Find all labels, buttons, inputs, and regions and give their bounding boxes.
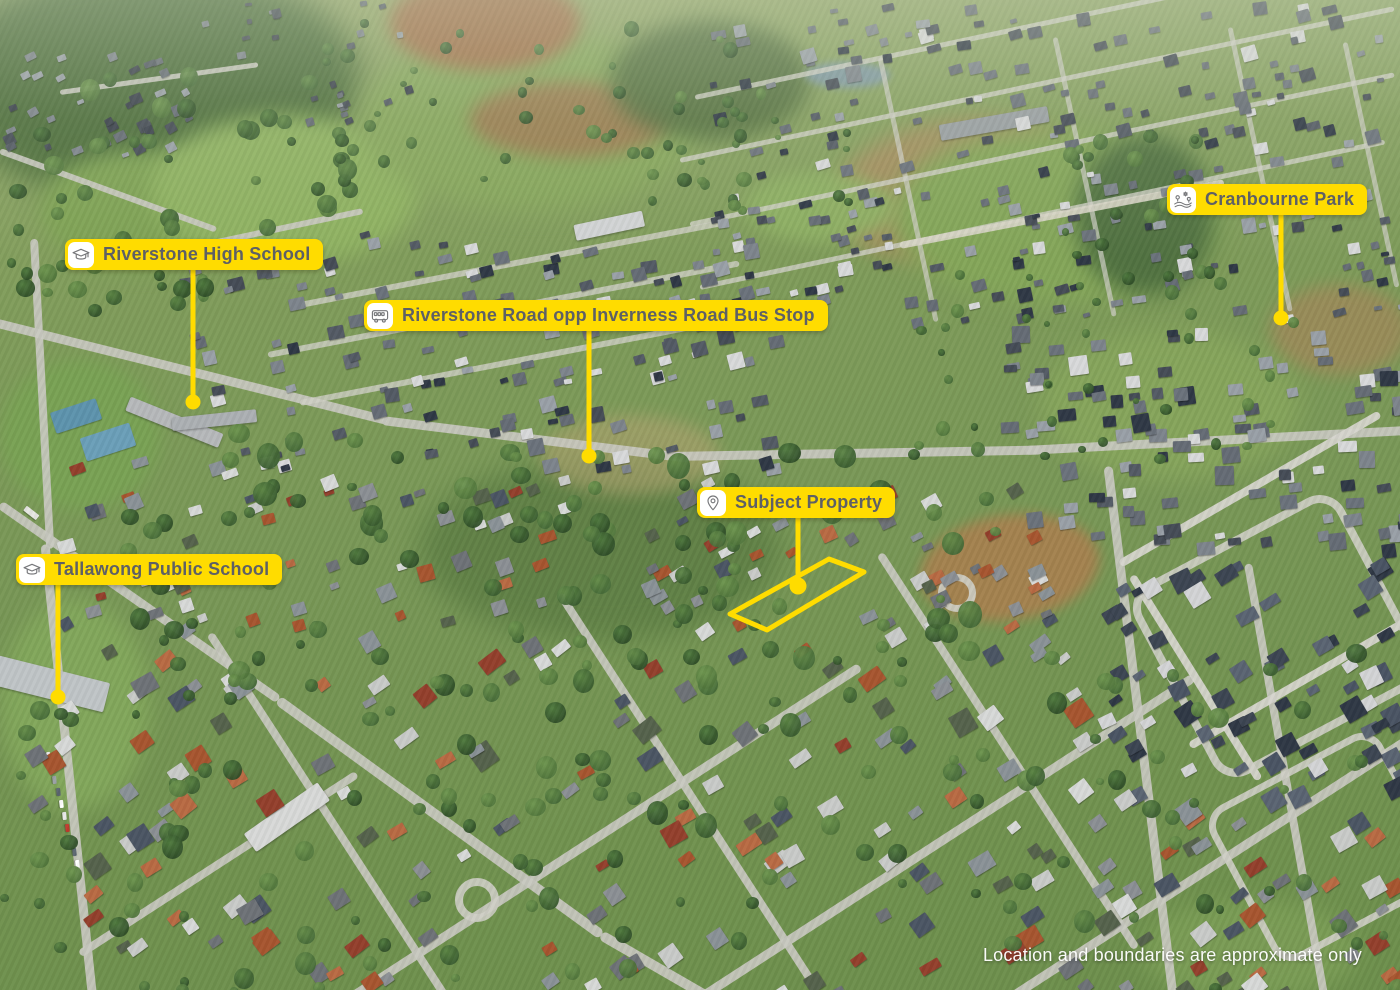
tree xyxy=(1092,298,1101,307)
tree xyxy=(583,526,600,542)
tree xyxy=(1096,778,1104,786)
tree xyxy=(762,641,779,658)
tree xyxy=(121,509,139,526)
tree xyxy=(731,932,748,950)
tree xyxy=(1108,770,1127,791)
tree xyxy=(1209,983,1222,990)
tree xyxy=(1144,209,1158,223)
tree xyxy=(728,200,741,211)
tree xyxy=(413,803,426,815)
tree xyxy=(511,467,531,484)
graduation-cap-icon xyxy=(19,557,45,583)
tree xyxy=(539,887,559,910)
tree xyxy=(296,640,305,650)
tree xyxy=(856,844,875,861)
tree xyxy=(317,195,337,213)
tree xyxy=(971,889,980,898)
tree xyxy=(198,763,212,778)
tree xyxy=(955,270,966,280)
tree xyxy=(322,43,333,55)
tree xyxy=(588,481,602,495)
tree xyxy=(295,841,315,861)
tree xyxy=(1154,454,1166,465)
tree xyxy=(44,156,63,175)
tree xyxy=(970,794,985,809)
tree xyxy=(537,511,553,529)
tree xyxy=(1098,437,1108,447)
tree xyxy=(170,657,185,671)
tree xyxy=(1165,285,1179,300)
tree xyxy=(938,349,944,356)
tree xyxy=(1026,274,1033,281)
marker-tallawong-public-school: Tallawong Public School xyxy=(16,554,282,585)
tree xyxy=(483,683,500,702)
tree xyxy=(127,873,144,891)
tree xyxy=(60,835,77,850)
tree xyxy=(179,911,189,922)
tree xyxy=(890,726,908,744)
tree xyxy=(30,701,50,720)
tree xyxy=(843,129,851,137)
tree xyxy=(16,771,26,780)
tree xyxy=(943,763,963,781)
tree xyxy=(936,595,945,603)
tree xyxy=(222,452,239,468)
tree xyxy=(1331,919,1347,933)
tree xyxy=(1078,446,1086,454)
tree xyxy=(591,450,606,465)
tree xyxy=(944,375,952,384)
tree xyxy=(1264,886,1275,896)
tree xyxy=(1083,383,1094,393)
tree xyxy=(942,532,964,555)
tree xyxy=(676,897,685,908)
tree xyxy=(484,579,502,596)
tree xyxy=(1266,420,1275,428)
marker-cranbourne-park: Cranbourne Park xyxy=(1167,184,1367,215)
tree xyxy=(877,619,890,631)
tree xyxy=(157,282,167,291)
tree xyxy=(951,304,965,319)
tree xyxy=(244,507,255,518)
tree xyxy=(526,900,539,911)
tree xyxy=(154,270,165,281)
tree xyxy=(746,897,759,910)
tree xyxy=(769,697,781,708)
tree xyxy=(378,155,390,168)
tree xyxy=(573,635,587,648)
tree xyxy=(510,526,529,544)
tree xyxy=(1014,873,1032,889)
tree xyxy=(709,531,726,548)
tree xyxy=(518,87,528,98)
marker-bus-stop: Riverstone Road opp Inverness Road Bus S… xyxy=(364,300,828,331)
tree xyxy=(513,854,528,870)
tree xyxy=(939,624,958,644)
tree xyxy=(141,134,156,149)
tree xyxy=(1189,798,1199,808)
tree xyxy=(647,801,668,825)
tree xyxy=(378,938,391,952)
tree xyxy=(1133,398,1140,404)
tree xyxy=(1288,317,1299,328)
tree xyxy=(143,522,162,539)
tree xyxy=(56,193,67,203)
tree xyxy=(290,494,306,508)
tree xyxy=(438,502,449,514)
tree xyxy=(347,144,359,157)
tree xyxy=(774,796,787,811)
tree xyxy=(717,117,729,128)
tree xyxy=(454,477,476,498)
tree xyxy=(33,127,51,142)
tree xyxy=(510,452,521,462)
tree xyxy=(728,563,741,575)
tree xyxy=(374,111,381,117)
tree xyxy=(305,679,318,692)
tree xyxy=(51,207,64,220)
tree xyxy=(843,146,849,153)
tree xyxy=(590,574,611,594)
tree xyxy=(297,926,314,943)
tree xyxy=(186,618,198,629)
tree xyxy=(679,479,690,491)
tree xyxy=(1187,248,1199,259)
tree xyxy=(525,77,534,86)
tree xyxy=(364,120,376,132)
tree xyxy=(335,154,346,164)
tree xyxy=(619,959,637,978)
tree xyxy=(897,657,907,666)
tree xyxy=(360,19,369,27)
tree xyxy=(253,482,277,505)
tree xyxy=(260,109,277,127)
marker-label: Riverstone Road opp Inverness Road Bus S… xyxy=(402,300,815,331)
tree xyxy=(391,451,404,464)
tree xyxy=(109,917,129,937)
tree xyxy=(613,625,632,644)
tree xyxy=(1047,692,1067,714)
tree xyxy=(683,649,700,665)
tree xyxy=(716,36,724,43)
tree xyxy=(480,176,487,183)
tree xyxy=(553,514,572,533)
tree xyxy=(103,72,117,87)
tree xyxy=(1208,708,1229,728)
tree xyxy=(971,423,979,431)
tree xyxy=(525,798,546,816)
tree xyxy=(780,713,802,737)
tree xyxy=(285,432,303,452)
marker-subject-property: Subject Property xyxy=(697,487,895,518)
tree xyxy=(129,136,140,148)
tree xyxy=(834,445,856,467)
tree xyxy=(385,706,396,716)
tree xyxy=(295,952,316,975)
tree xyxy=(723,42,738,59)
tree xyxy=(675,567,692,585)
tree xyxy=(221,511,237,526)
tree xyxy=(627,792,640,806)
tree xyxy=(132,710,140,719)
tree xyxy=(667,453,690,479)
marker-label: Cranbourne Park xyxy=(1205,184,1354,215)
tree xyxy=(926,504,942,521)
tree xyxy=(663,140,674,152)
tree xyxy=(1216,905,1224,914)
tree xyxy=(1040,452,1049,460)
tree xyxy=(775,135,781,141)
tree xyxy=(277,115,292,130)
tree xyxy=(613,86,626,99)
tree xyxy=(183,690,195,701)
tree xyxy=(40,810,52,821)
tree xyxy=(695,813,717,838)
tree xyxy=(400,81,407,87)
tree xyxy=(54,708,68,720)
tree xyxy=(539,668,558,685)
tree xyxy=(648,447,665,464)
tree xyxy=(821,815,840,835)
tree xyxy=(712,595,726,611)
tree xyxy=(762,869,777,885)
tree xyxy=(641,147,654,160)
tree xyxy=(463,819,476,833)
tree xyxy=(162,835,183,859)
tree xyxy=(460,684,473,697)
tree xyxy=(772,598,787,615)
tree xyxy=(1083,152,1095,163)
tree xyxy=(456,29,464,37)
tree xyxy=(322,58,331,66)
tree xyxy=(607,850,623,867)
park-icon xyxy=(1170,187,1196,213)
tree xyxy=(500,153,511,164)
marker-label: Subject Property xyxy=(735,487,882,518)
tree xyxy=(1022,314,1032,323)
tree xyxy=(876,641,889,654)
tree xyxy=(1388,979,1400,990)
tree xyxy=(0,894,8,902)
tree xyxy=(675,91,687,103)
tree xyxy=(1075,145,1084,154)
tree xyxy=(1129,912,1139,923)
tree xyxy=(88,304,102,317)
tree xyxy=(833,190,845,202)
tree xyxy=(1191,702,1204,716)
tree xyxy=(440,42,452,54)
tree xyxy=(771,117,778,124)
tree xyxy=(1214,277,1227,290)
tree xyxy=(1279,785,1289,794)
tree xyxy=(861,765,876,779)
tree xyxy=(80,79,100,100)
tree xyxy=(335,134,348,147)
tree xyxy=(1211,438,1221,450)
tree xyxy=(259,219,276,237)
tree xyxy=(894,675,907,687)
tree xyxy=(400,550,419,567)
tree xyxy=(463,506,483,528)
tree xyxy=(536,756,557,779)
tree xyxy=(675,604,693,624)
tree xyxy=(1057,856,1071,869)
tree xyxy=(164,155,173,164)
tree xyxy=(730,107,740,117)
tree xyxy=(843,687,857,703)
tree xyxy=(575,753,590,767)
tree xyxy=(77,185,93,201)
tree xyxy=(251,176,260,185)
tree xyxy=(106,290,122,304)
tree xyxy=(340,49,355,63)
tree xyxy=(1076,282,1083,290)
tree xyxy=(164,220,180,235)
tree xyxy=(1097,673,1115,690)
tree xyxy=(259,873,278,891)
aerial-photo: Riverstone High School Riverstone Road o… xyxy=(0,0,1400,990)
tree xyxy=(979,492,994,506)
tree xyxy=(38,264,57,283)
tree xyxy=(371,648,389,665)
tree xyxy=(257,443,280,470)
tree xyxy=(169,780,189,797)
tree xyxy=(351,916,360,926)
tree xyxy=(1242,398,1254,411)
tree xyxy=(941,323,950,332)
tree xyxy=(426,774,441,789)
tree xyxy=(565,963,580,979)
tree xyxy=(130,608,150,630)
tree xyxy=(573,669,594,693)
tree xyxy=(1167,669,1179,682)
tree xyxy=(301,75,318,90)
tree xyxy=(593,787,609,801)
tree xyxy=(697,177,707,186)
tree xyxy=(139,981,150,990)
tree xyxy=(648,196,657,206)
tree xyxy=(1294,701,1311,719)
tree xyxy=(624,21,639,37)
tree xyxy=(566,495,582,512)
tree xyxy=(734,129,747,143)
tree xyxy=(1072,160,1084,170)
tree xyxy=(1026,766,1045,786)
tree xyxy=(68,281,87,298)
tree xyxy=(1163,271,1174,282)
tree xyxy=(949,755,959,764)
tree xyxy=(844,198,852,206)
tree xyxy=(627,147,640,158)
disclaimer-text: Location and boundaries are approximate … xyxy=(983,945,1362,966)
tree xyxy=(228,674,241,687)
tree xyxy=(159,635,169,646)
tree xyxy=(1249,345,1260,356)
tree xyxy=(1095,238,1110,251)
tree xyxy=(1127,151,1142,166)
tree xyxy=(1242,442,1252,451)
tree xyxy=(898,879,907,888)
tree xyxy=(557,586,576,604)
tree xyxy=(180,67,198,88)
tree xyxy=(534,44,544,55)
tree xyxy=(1143,130,1158,143)
tree xyxy=(54,942,66,953)
tree xyxy=(990,527,1001,537)
tree xyxy=(235,626,246,638)
tree xyxy=(888,844,907,862)
tree xyxy=(223,760,242,780)
tree xyxy=(417,891,430,902)
tree xyxy=(696,665,717,689)
tree xyxy=(1160,404,1173,415)
tree xyxy=(1074,910,1095,933)
tree xyxy=(18,725,37,741)
tree xyxy=(313,982,325,990)
graduation-cap-icon xyxy=(68,242,94,268)
tree xyxy=(1047,416,1057,427)
tree xyxy=(347,790,362,806)
tree xyxy=(457,734,476,755)
tree xyxy=(66,866,83,884)
tree xyxy=(1185,308,1197,320)
tree xyxy=(1196,894,1214,914)
marker-label: Tallawong Public School xyxy=(54,554,269,585)
tree xyxy=(673,103,684,115)
tree xyxy=(430,676,444,689)
tree xyxy=(13,224,23,235)
tree xyxy=(545,788,562,804)
tree xyxy=(519,111,533,124)
tree xyxy=(1169,836,1182,849)
tree xyxy=(311,182,325,196)
tree xyxy=(609,62,616,70)
tree xyxy=(976,748,990,762)
tree xyxy=(228,424,250,444)
tree xyxy=(170,296,186,312)
tree xyxy=(748,619,761,631)
tree xyxy=(1044,651,1059,665)
tree xyxy=(676,145,687,155)
tree xyxy=(287,137,296,146)
tree xyxy=(736,172,752,187)
tree xyxy=(1355,755,1368,767)
tree xyxy=(1150,750,1164,765)
tree xyxy=(1204,266,1215,278)
tree xyxy=(7,258,17,268)
tree xyxy=(698,586,708,594)
tree xyxy=(596,773,611,787)
tree xyxy=(224,692,237,705)
tree xyxy=(1263,663,1278,677)
tree xyxy=(758,724,769,734)
tree xyxy=(699,725,718,745)
map-pin-icon xyxy=(700,490,726,516)
tree xyxy=(1110,208,1122,220)
tree xyxy=(589,750,611,771)
tree xyxy=(647,169,658,180)
tree xyxy=(756,88,766,99)
tree xyxy=(1379,931,1388,939)
tree xyxy=(675,535,691,551)
tree xyxy=(347,433,363,448)
tree xyxy=(573,105,585,116)
tree xyxy=(1082,329,1090,337)
tree xyxy=(1142,800,1161,818)
tree xyxy=(601,133,612,143)
tree xyxy=(152,97,172,118)
tree xyxy=(21,267,33,281)
